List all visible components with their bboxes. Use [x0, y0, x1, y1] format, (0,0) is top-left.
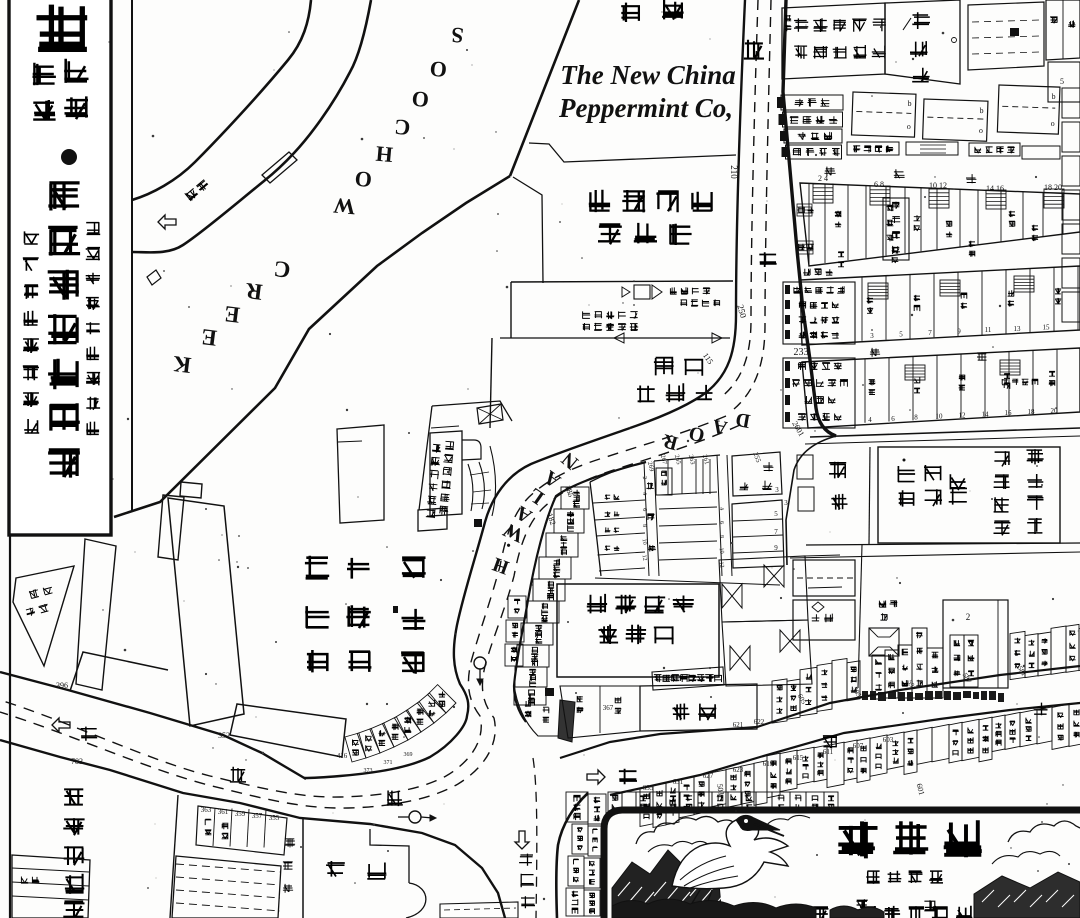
svg-text:K: K [172, 351, 193, 378]
svg-text:Peppermint Co,: Peppermint Co, [558, 93, 733, 123]
svg-text:603: 603 [883, 736, 894, 744]
svg-text:363: 363 [201, 806, 212, 814]
svg-text:2: 2 [966, 612, 971, 622]
svg-text:16: 16 [1005, 409, 1013, 417]
svg-text:10: 10 [936, 413, 944, 421]
svg-text:210: 210 [729, 165, 739, 179]
svg-text:H: H [375, 141, 394, 167]
svg-text:10: 10 [641, 538, 648, 545]
svg-text:10: 10 [718, 547, 725, 554]
svg-text:3: 3 [784, 499, 788, 507]
svg-text:619: 619 [763, 760, 774, 768]
svg-text:635: 635 [643, 784, 654, 792]
svg-text:R: R [244, 278, 264, 305]
svg-text:2 4: 2 4 [818, 174, 828, 183]
svg-text:14: 14 [982, 410, 990, 418]
svg-text:E: E [223, 301, 241, 328]
svg-text:W: W [332, 193, 356, 220]
svg-text:o: o [979, 126, 983, 135]
svg-text:13: 13 [1014, 325, 1022, 333]
svg-text:12: 12 [959, 411, 967, 419]
svg-text:o: o [907, 122, 911, 131]
svg-text:373: 373 [364, 768, 373, 774]
svg-text:8: 8 [914, 414, 918, 422]
svg-text:355: 355 [269, 814, 280, 822]
svg-text:5: 5 [774, 510, 778, 518]
svg-text:623: 623 [733, 766, 744, 774]
svg-text:352: 352 [218, 731, 230, 740]
svg-text:5: 5 [899, 331, 903, 339]
svg-text:O: O [411, 86, 430, 112]
svg-text:18 20: 18 20 [1044, 183, 1062, 192]
svg-text:3: 3 [870, 332, 874, 340]
svg-text:E: E [200, 324, 218, 351]
svg-text:369: 369 [404, 752, 413, 758]
svg-text:9: 9 [774, 544, 778, 552]
svg-text:371: 371 [384, 760, 393, 766]
svg-text:6: 6 [891, 415, 895, 423]
svg-text:b: b [907, 99, 911, 108]
svg-text:357: 357 [252, 812, 263, 820]
svg-text:20: 20 [1051, 407, 1059, 415]
svg-text:9: 9 [957, 328, 961, 336]
svg-text:631: 631 [673, 778, 684, 786]
svg-text:o: o [1051, 119, 1055, 128]
svg-text:12: 12 [718, 561, 725, 568]
svg-text:b: b [979, 106, 983, 115]
svg-text:5: 5 [1060, 77, 1064, 86]
svg-text:S: S [450, 22, 464, 48]
svg-text:367: 367 [603, 704, 614, 712]
svg-text:O: O [429, 56, 448, 82]
svg-text:3: 3 [775, 486, 779, 494]
svg-text:b: b [1051, 92, 1055, 101]
svg-text:7: 7 [928, 329, 932, 337]
svg-text:627: 627 [703, 772, 714, 780]
svg-text:7: 7 [774, 528, 778, 536]
svg-text:C: C [272, 256, 292, 283]
svg-text:783: 783 [71, 757, 83, 766]
svg-text:15: 15 [1043, 323, 1051, 331]
svg-text:4: 4 [868, 416, 872, 424]
svg-text:615: 615 [793, 754, 804, 762]
svg-text:C: C [393, 114, 411, 140]
svg-text:611: 611 [823, 748, 834, 756]
svg-text:11: 11 [985, 326, 992, 334]
svg-text:18: 18 [1028, 408, 1036, 416]
svg-text:416: 416 [337, 752, 348, 760]
svg-text:12: 12 [641, 554, 648, 561]
svg-text:396: 396 [56, 681, 68, 690]
svg-text:233: 233 [794, 347, 809, 358]
svg-text:359: 359 [235, 810, 246, 818]
svg-text:O: O [354, 166, 373, 192]
svg-text:The New China: The New China [560, 60, 736, 90]
svg-text:607: 607 [853, 742, 864, 750]
svg-text:361: 361 [218, 808, 229, 816]
svg-text:6 8: 6 8 [874, 180, 884, 189]
